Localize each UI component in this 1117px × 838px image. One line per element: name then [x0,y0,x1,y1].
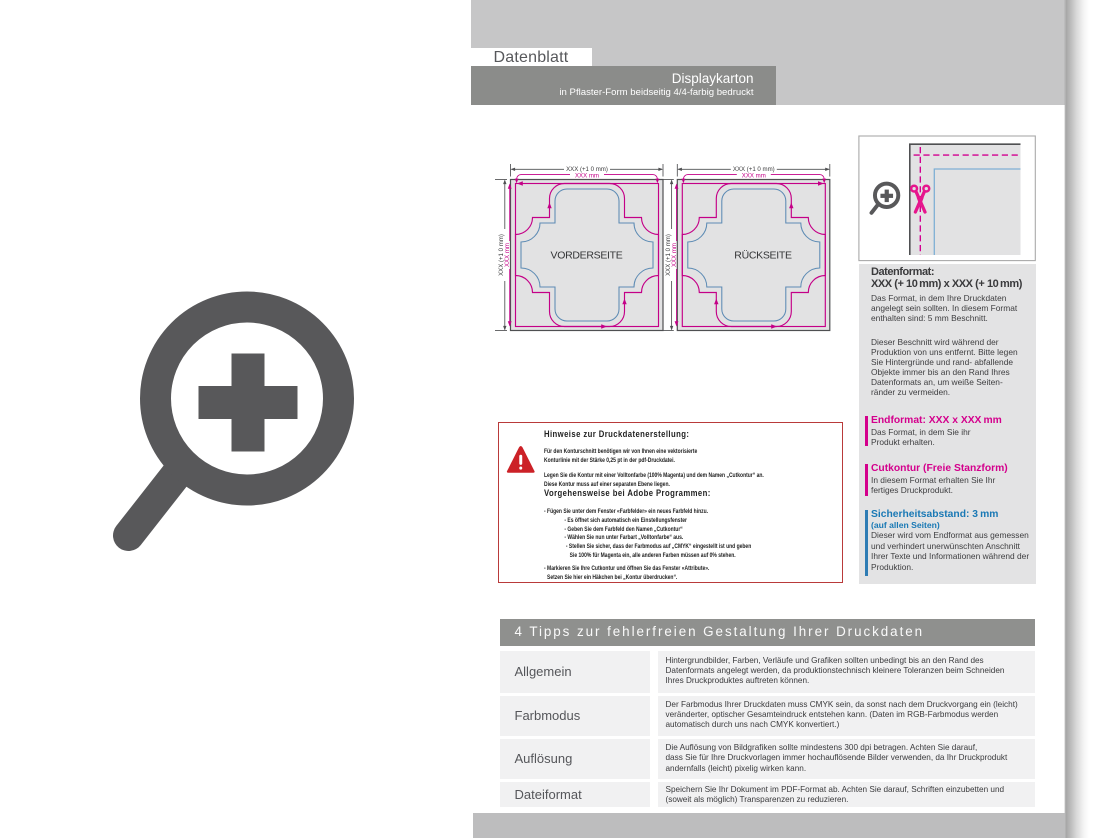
svg-text:XXX mm: XXX mm [504,243,511,267]
svg-text:XXX mm: XXX mm [671,243,678,267]
svg-text:VORDERSEITE: VORDERSEITE [551,250,623,262]
svg-text:XXX mm: XXX mm [742,172,766,179]
svg-text:XXX mm: XXX mm [575,172,599,179]
svg-text:RÜCKSEITE: RÜCKSEITE [734,250,792,262]
